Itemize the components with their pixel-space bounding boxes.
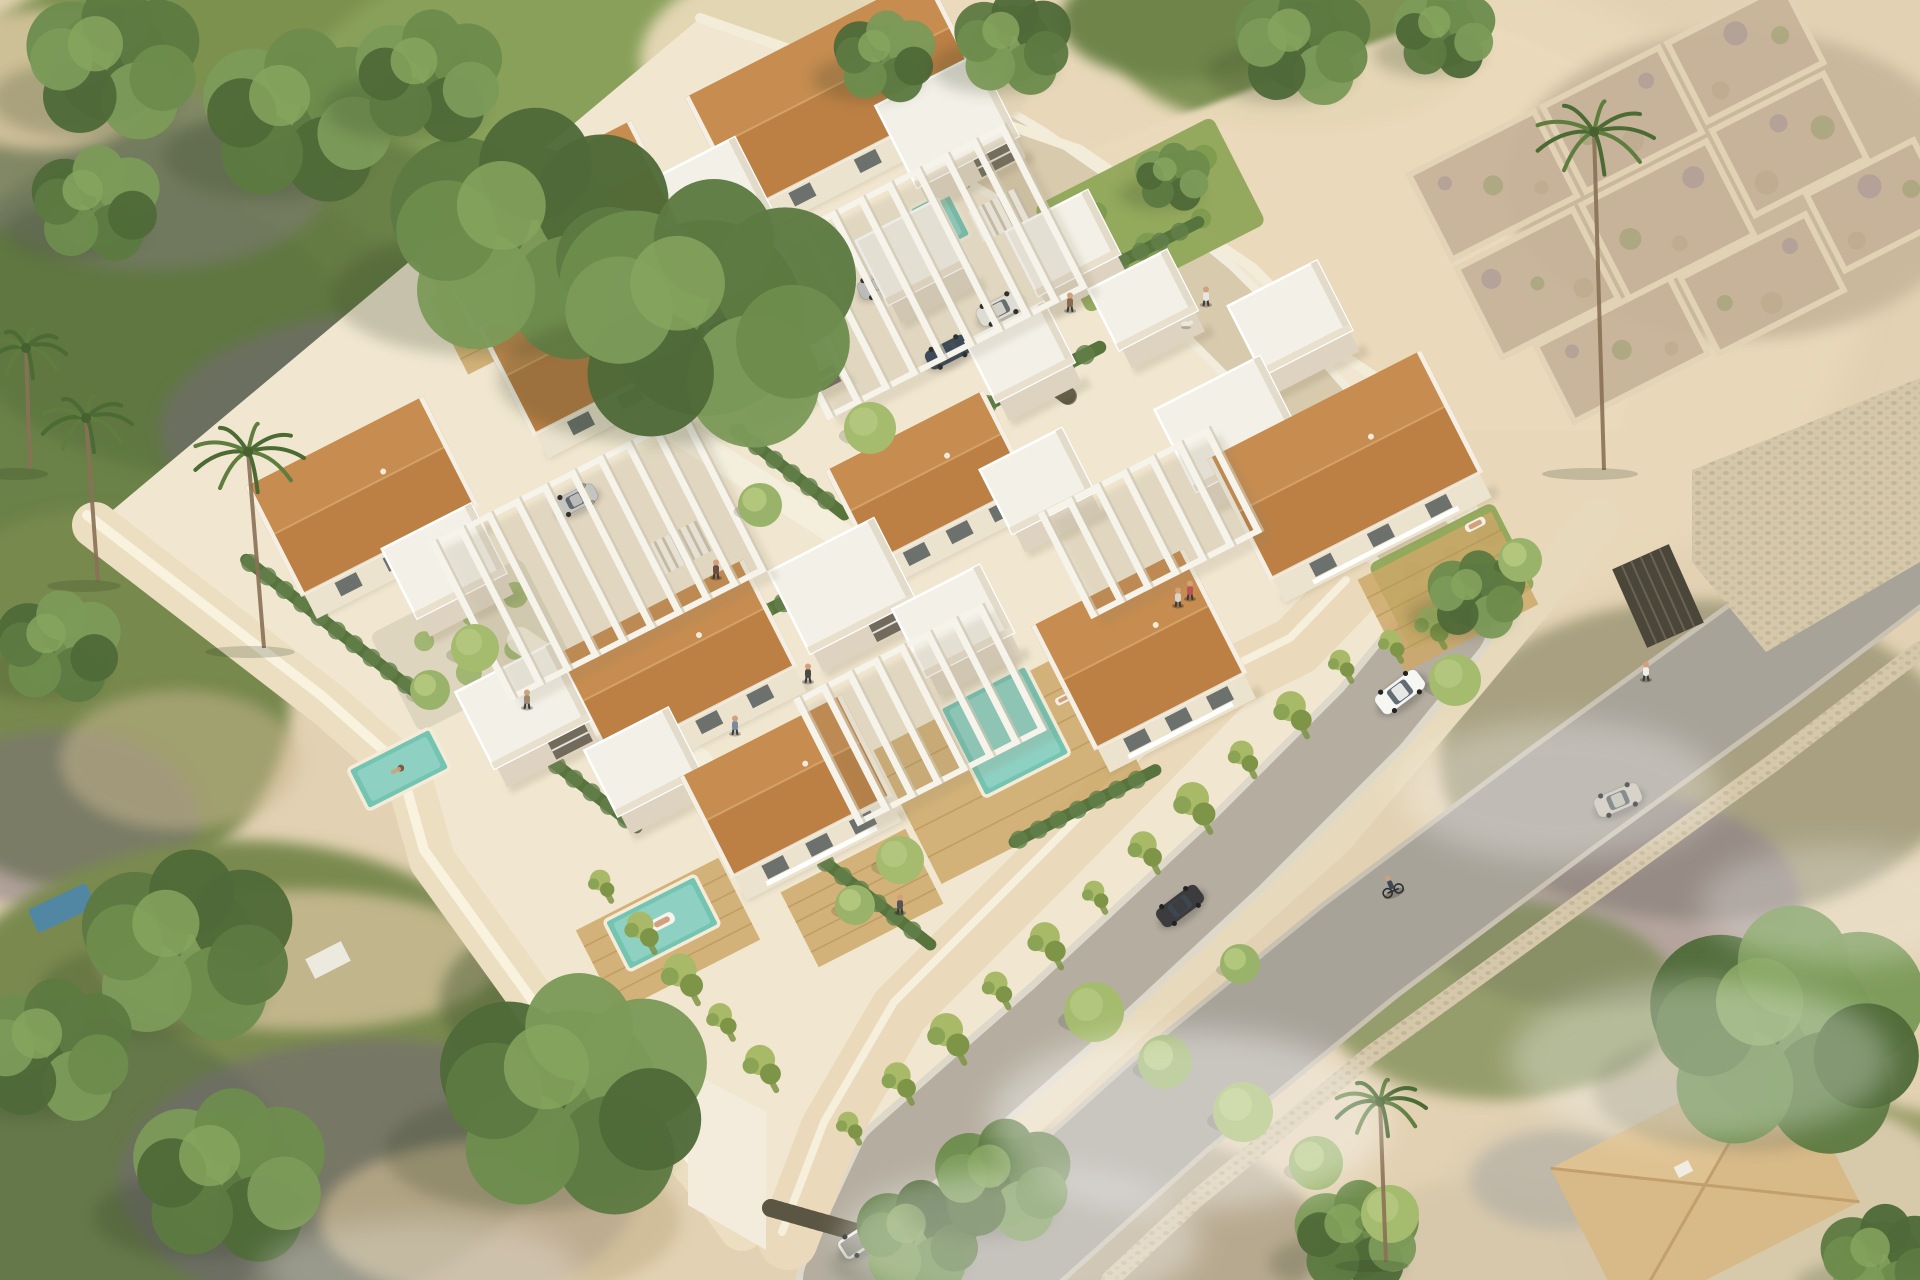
- aerial-render-stage: Aerial 3D architectural render of a wall…: [0, 0, 1920, 1280]
- tree: [0, 590, 121, 702]
- villa-development-aerial-render: Aerial 3D architectural render of a wall…: [0, 0, 1920, 1280]
